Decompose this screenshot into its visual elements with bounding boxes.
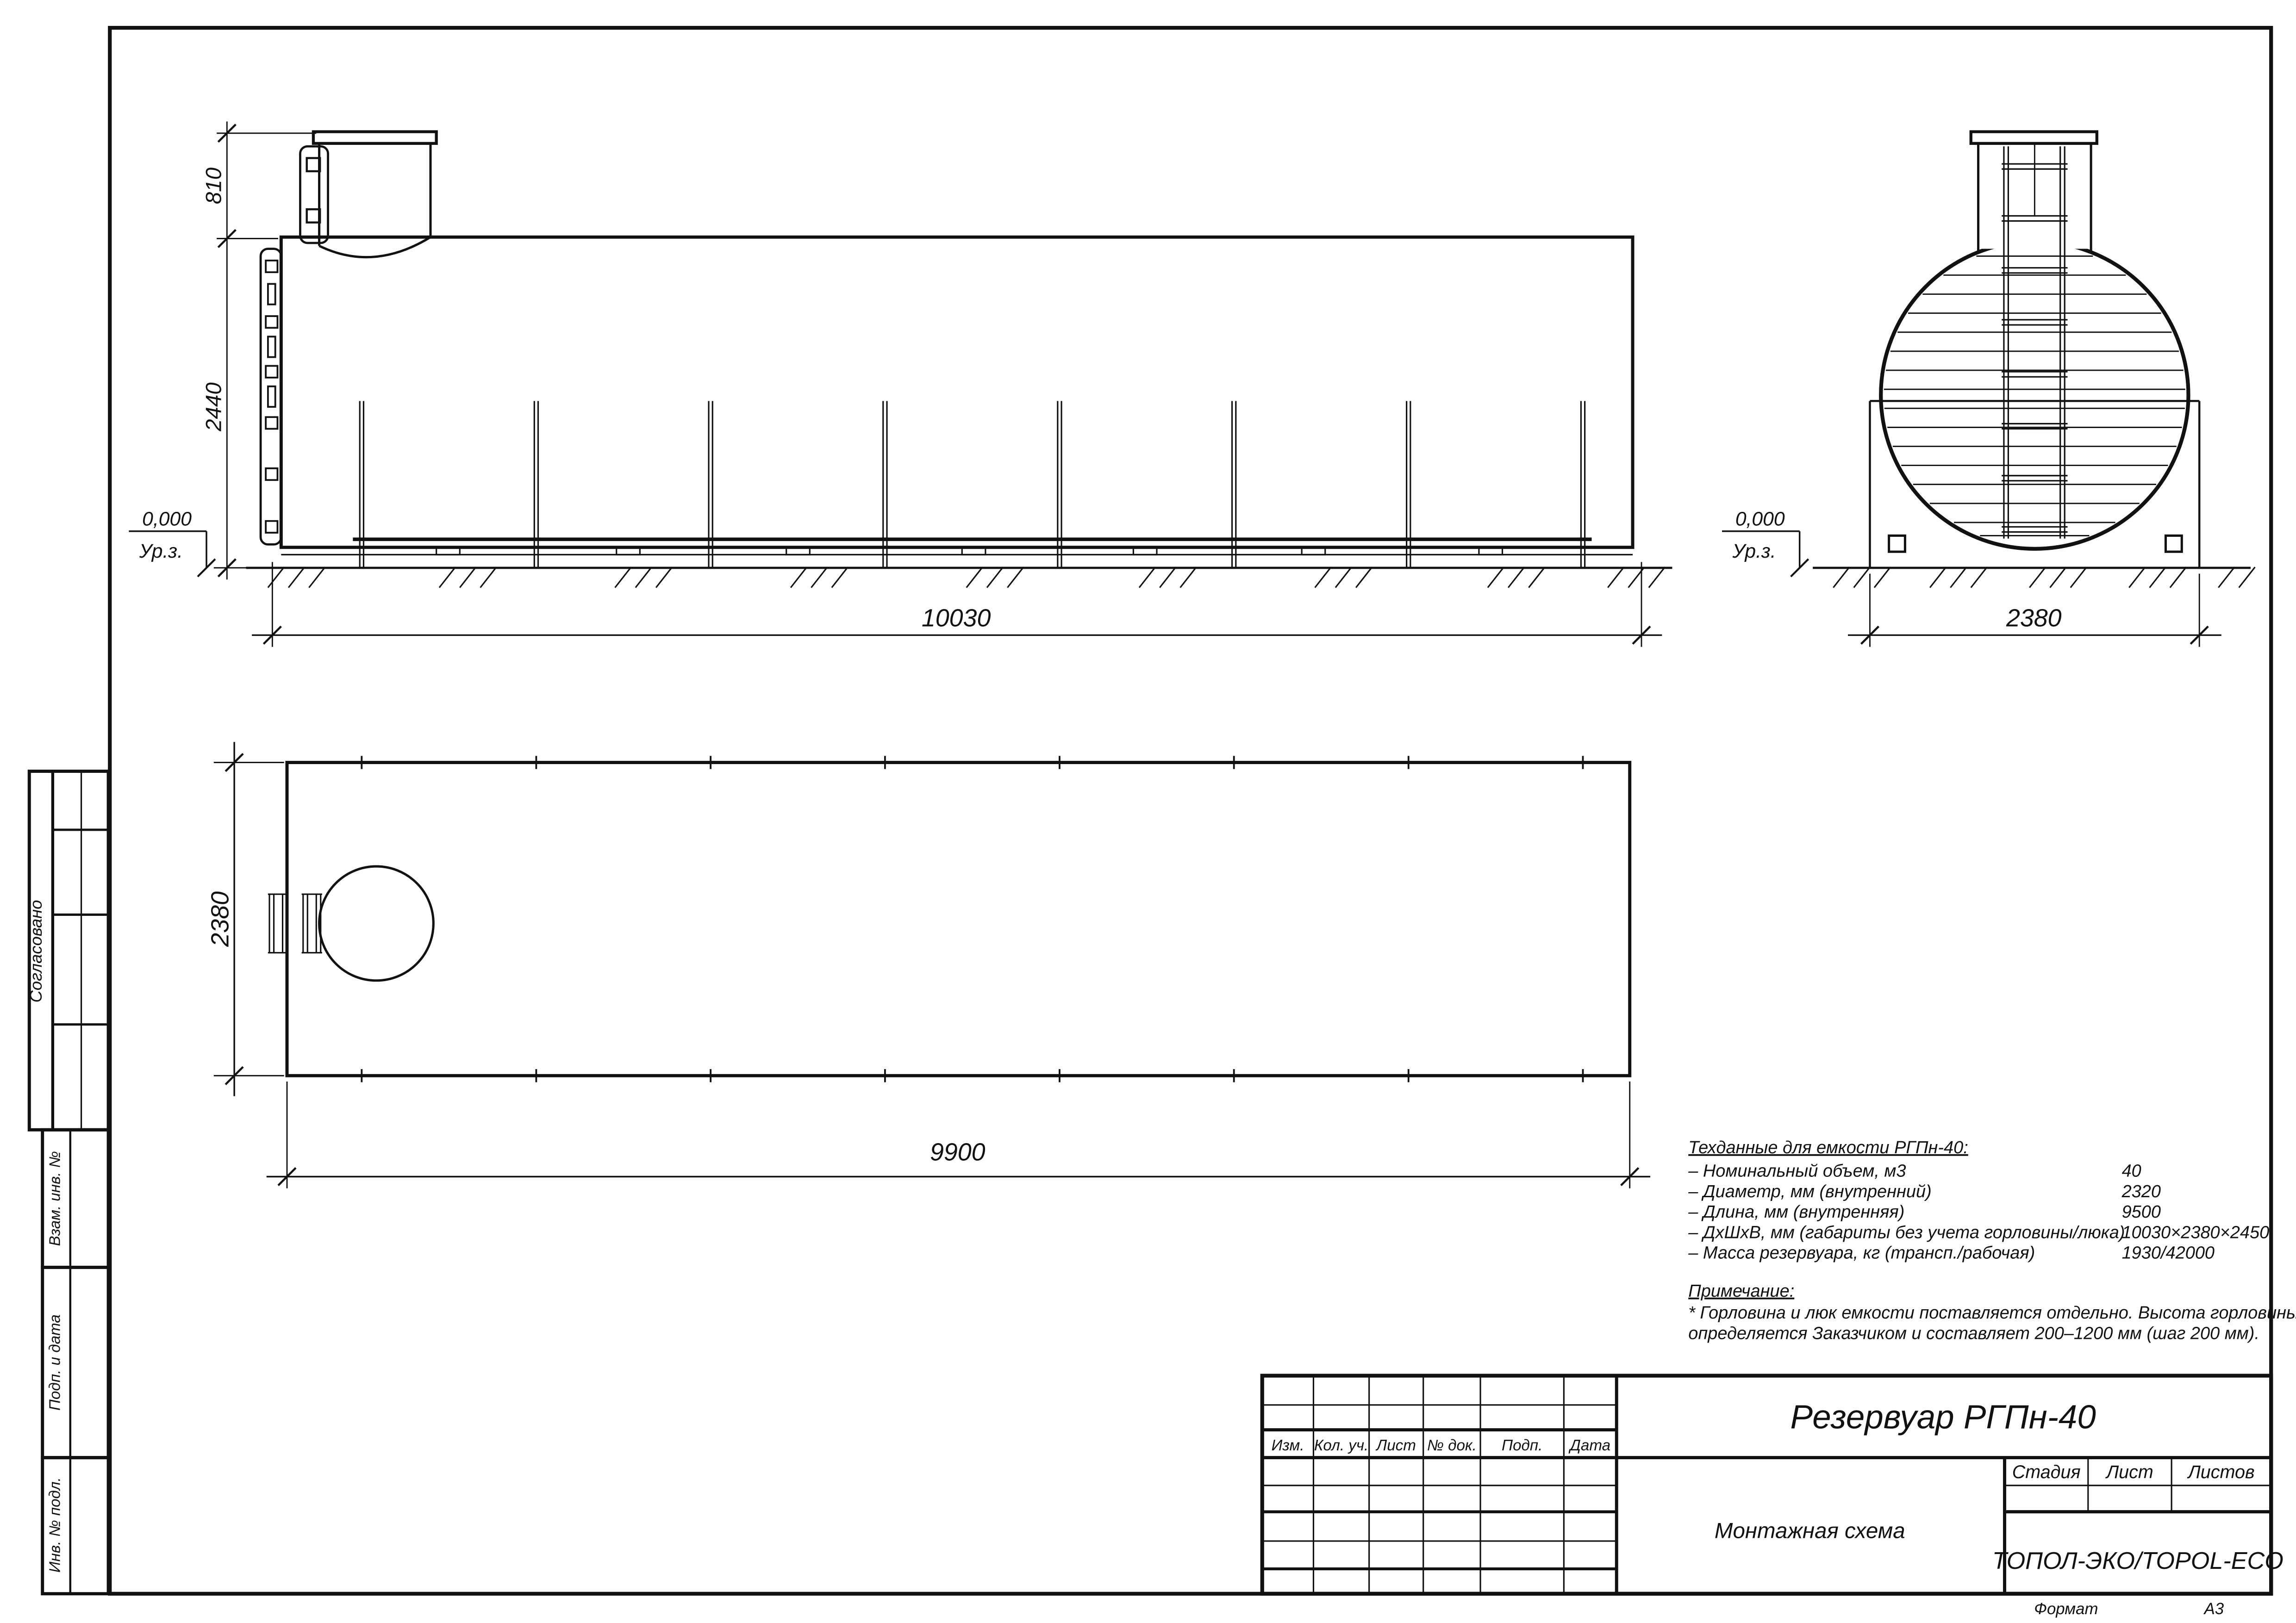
level-label: Ур.з. [139,540,183,562]
note-line2: определяется Заказчиком и составляет 200… [1688,1324,2259,1343]
tech-item-label: – ДхШхВ, мм (габариты без учета горловин… [1688,1223,2125,1242]
end-level-value: 0,000 [1735,508,1785,530]
dim-810-text: 810 [202,168,226,204]
col-izm: Изм. [1272,1437,1304,1454]
col-podp: Подп. [1502,1437,1542,1454]
sheets-label: Листов [2187,1462,2255,1482]
tech-item-value: 1930/42000 [2122,1244,2215,1263]
sheet-label: Лист [2105,1462,2153,1482]
neck-mask [1980,143,2091,249]
dim-2380-plan-text: 2380 [206,891,234,947]
tech-item-label: – Диаметр, мм (внутренний) [1688,1182,1931,1201]
dim-9900-text: 9900 [930,1138,986,1166]
dim-10030-text: 10030 [922,604,991,632]
sheet-background [0,0,2296,1623]
tech-item-value: 40 [2122,1162,2141,1181]
tech-item-label: – Масса резервуара, кг (трансп./рабочая) [1688,1244,2035,1263]
stage-headers: Стадия Лист Листов [2012,1462,2255,1482]
tech-data-heading: Техданные для емкости РГПн-40: [1688,1138,1968,1157]
stamp-approved-label: Согласовано [26,900,45,1003]
end-level-label: Ур.з. [1732,540,1776,562]
tech-item-value: 2320 [2121,1182,2161,1201]
format-label: Формат [2034,1600,2098,1618]
format-value: А3 [2203,1600,2224,1618]
level-value: 0,000 [142,508,192,530]
drawing-canvas: Согласовано Взам. инв. № Подп. и дата Ин… [0,0,2296,1623]
dim-2380-end-text: 2380 [2006,604,2062,632]
stamp-replace-inv-label: Взам. инв. № [47,1151,64,1246]
note-line1: * Горловина и люк емкости поставляется о… [1688,1303,2296,1323]
dim-2440-text: 2440 [202,382,226,432]
col-ndok: № док. [1427,1437,1477,1454]
company-name: ТОПОЛ-ЭКО/TOPOL-ECO [1992,1548,2284,1574]
tech-item-label: – Номинальный объем, м3 [1688,1162,1906,1181]
col-kol-uch: Кол. уч. [1314,1437,1368,1454]
col-list: Лист [1375,1437,1416,1454]
stage-label: Стадия [2012,1462,2081,1482]
tech-item-value: 9500 [2122,1202,2161,1222]
col-data: Дата [1568,1437,1611,1454]
stamp-sign-date-label: Подп. и дата [47,1314,64,1411]
tech-item-value: 10030×2380×2450 [2122,1223,2270,1242]
tech-item-label: – Длина, мм (внутренняя) [1688,1202,1904,1222]
note-heading: Примечание: [1688,1281,1794,1301]
drawing-title: Резервуар РГПн-40 [1791,1398,2096,1436]
stamp-inv-orig-label: Инв. № подл. [47,1477,64,1573]
doc-type: Монтажная схема [1715,1519,1905,1543]
